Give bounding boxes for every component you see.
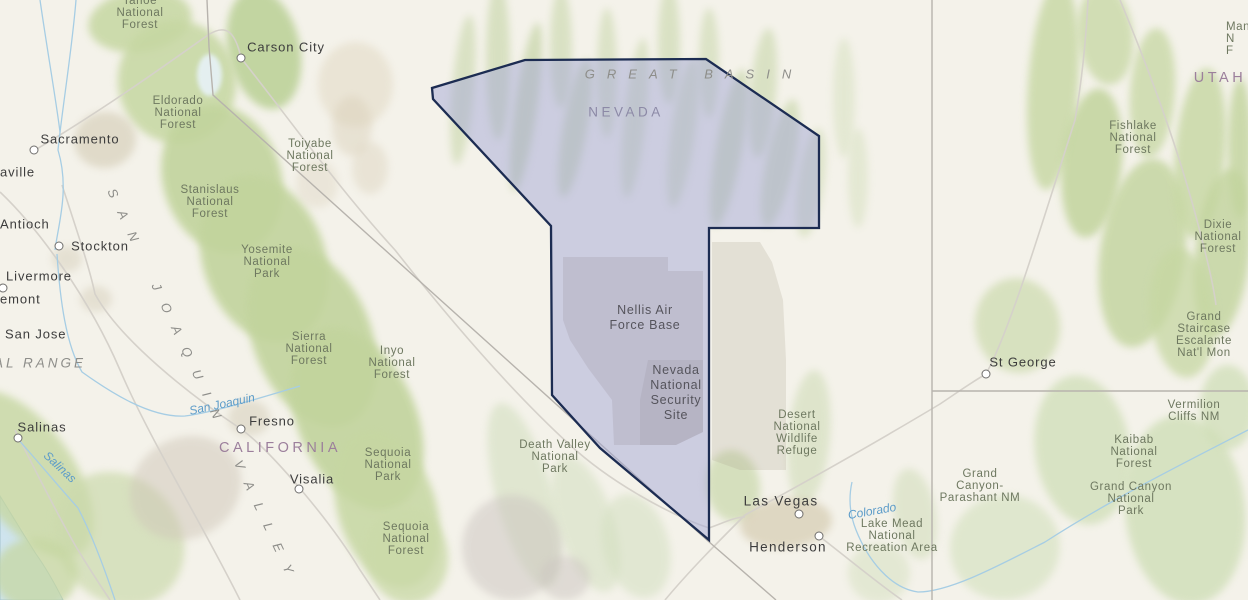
label-death-valley-np: Death Valley National Park [519, 440, 591, 476]
mountain-ridge [446, 14, 481, 165]
military-area [462, 495, 562, 600]
forest-area [222, 228, 402, 447]
city-label-carson-city: Carson City [247, 40, 325, 55]
line-layer [0, 0, 1248, 600]
forest-area [967, 271, 1067, 379]
label-kaibab-nf: Kaibab National Forest [1111, 435, 1158, 471]
forest-area [264, 307, 450, 530]
lake-tahoe [197, 54, 222, 96]
city-marker-carson-city [237, 54, 246, 63]
mountain-ridge [702, 67, 755, 229]
label-sequoia-np: Sequoia National Park [365, 448, 412, 484]
forest-area [1025, 369, 1140, 531]
label-manti-nf-clipped: Man N F [1226, 22, 1248, 58]
city-label-antioch: Antioch [0, 217, 50, 232]
river-label-san-joaquin: San Joaquin [188, 390, 256, 418]
mountain-ridge [551, 57, 599, 199]
city-marker-stockton [55, 242, 64, 251]
road-ut [1120, 0, 1216, 305]
label-gc-parashant: Grand Canyon- Parashant NM [940, 469, 1021, 505]
state-label-california: CALIFORNIA [219, 440, 341, 456]
label-grand-staircase: Grand Staircase Escalante Nat'l Mon [1176, 312, 1232, 360]
label-nevada-nss: Nevada National Security Site [650, 363, 701, 423]
forest-area [848, 543, 910, 600]
terrain-tan [296, 160, 338, 208]
forest-area [1054, 85, 1129, 240]
map-canvas[interactable]: CALIFORNIA NEVADA UTAH GREAT BASIN SAN J… [0, 0, 1248, 600]
forest-area [142, 88, 301, 269]
label-fishlake-nf: Fishlake National Forest [1109, 121, 1157, 157]
forest-area [1144, 245, 1220, 380]
city-marker-fresno [237, 425, 246, 434]
forest-area [104, 7, 250, 157]
terrain-tan [352, 142, 388, 194]
city-label-visalia: Visalia [290, 472, 334, 487]
label-sierra-nf: Sierra National Forest [286, 332, 333, 368]
salinas-river [16, 437, 115, 600]
mountain-ridge [790, 127, 831, 240]
label-dixie-nf: Dixie National Forest [1195, 220, 1242, 256]
military-area [111, 416, 261, 560]
city-label-sacramento: Sacramento [40, 132, 119, 147]
region-label-coastal-range: AL RANGE [0, 356, 86, 371]
state-borders [207, 0, 1248, 600]
border-ca-nv [207, 0, 776, 600]
forest-area [1021, 0, 1086, 191]
label-sequoia-nf: Sequoia National Forest [383, 522, 430, 558]
city-label-salinas: Salinas [18, 420, 67, 435]
label-lake-mead-nra: Lake Mead National Recreation Area [846, 519, 937, 555]
city-label-san-jose: San Jose [5, 327, 66, 342]
forest-area [1073, 0, 1138, 88]
mountain-ridge [486, 0, 510, 140]
city-label-vacaville-clipped: aville [0, 165, 35, 180]
urban-area [52, 246, 82, 272]
military-area [540, 556, 590, 600]
terrain-tan [318, 42, 393, 127]
road-i15-south [665, 515, 745, 600]
city-marker-henderson [815, 532, 824, 541]
road-i15 [745, 0, 1088, 515]
road-ca99 [62, 185, 380, 600]
label-yosemite-np: Yosemite National Park [241, 245, 293, 281]
city-label-st-george: St George [989, 355, 1056, 370]
mountain-ridge [699, 8, 719, 118]
mountain-ridge [503, 21, 548, 192]
label-stanislaus-nf: Stanislaus National Forest [180, 185, 239, 221]
label-eldorado-nf: Eldorado National Forest [153, 96, 204, 132]
roads [0, 0, 1216, 600]
region-label-san-joaquin-valley: SAN JOAQUIN VALLEY [104, 186, 303, 589]
label-toiyabe-nf: Toiyabe National Forest [287, 139, 334, 175]
forest-area [1126, 27, 1180, 160]
mountain-ridge [550, 0, 572, 108]
urban-area [80, 286, 112, 312]
road-us101 [15, 430, 110, 600]
label-nellis-afb: Nellis Air Force Base [610, 303, 681, 333]
desert-nwr-land [712, 242, 786, 470]
label-inyo-nf: Inyo National Forest [369, 346, 416, 382]
label-tahoe-nf: Tahoe National Forest [117, 0, 164, 32]
region-label-great-basin: GREAT BASIN [585, 67, 803, 82]
feather-river [40, 0, 60, 132]
colorado-river [850, 430, 1248, 592]
mountain-ridge [616, 37, 655, 198]
city-label-henderson: Henderson [749, 540, 827, 555]
forest-area [315, 417, 458, 600]
city-label-livermore: Livermore [6, 269, 72, 284]
forest-area [701, 447, 764, 526]
sacramento-river [55, 0, 76, 250]
nnss-land [640, 360, 703, 445]
road-us95 [241, 58, 745, 528]
forest-area [0, 538, 78, 600]
forest-area [0, 368, 120, 580]
forest-area [177, 157, 350, 360]
urban-area [70, 107, 141, 173]
forest-area [590, 486, 681, 600]
road-us93 [819, 536, 902, 600]
road-i80 [35, 30, 241, 150]
forest-area [1186, 166, 1248, 341]
city-marker-las-vegas [795, 510, 804, 519]
mountain-ridge [597, 8, 617, 138]
highlighted-range-polygon[interactable] [432, 59, 819, 540]
mountain-ridge [661, 57, 706, 209]
forest-area [1200, 365, 1248, 450]
label-desert-nwr: Desert National Wildlife Refuge [774, 410, 821, 458]
ocean-layer [0, 0, 1248, 600]
city-marker-visalia [295, 485, 304, 494]
forest-area [84, 0, 196, 59]
forest-area [358, 502, 455, 600]
forest-area [1168, 66, 1233, 240]
mountain-ridge [744, 27, 781, 159]
san-joaquin-river [57, 254, 300, 416]
nellis-afb-land [563, 257, 703, 445]
state-label-nevada: NEVADA [588, 105, 664, 120]
pacific-ocean [0, 496, 63, 600]
city-label-las-vegas: Las Vegas [744, 494, 819, 509]
river-label-colorado: Colorado [847, 500, 897, 522]
forest-area [27, 445, 212, 600]
city-marker-st-george [982, 370, 991, 379]
forest-area [537, 448, 634, 600]
city-label-stockton: Stockton [71, 239, 129, 254]
label-grand-canyon-np: Grand Canyon National Park [1090, 482, 1172, 518]
state-label-utah: UTAH [1194, 70, 1246, 86]
forest-area [1228, 78, 1248, 218]
terrain-tan [332, 96, 372, 156]
urban-area [738, 494, 834, 552]
forest-area [216, 0, 312, 116]
city-marker-salinas [14, 434, 23, 443]
forest-area [886, 465, 943, 563]
city-label-fremont-clipped: emont [0, 292, 41, 307]
city-label-fresno: Fresno [249, 414, 295, 429]
mountain-ridge [833, 38, 855, 158]
forest-area [1115, 409, 1248, 600]
road-i5 [0, 192, 240, 600]
forest-area [940, 485, 1069, 600]
urban-area [228, 400, 270, 436]
forest-area [472, 396, 575, 594]
mountain-ridge [848, 128, 868, 228]
rivers [16, 0, 1248, 600]
forest-area [1087, 153, 1198, 353]
mountain-ridge [753, 97, 807, 230]
city-marker-livermore [0, 284, 8, 293]
mountain-ridge [658, 0, 680, 104]
river-label-salinas: Salinas [41, 448, 79, 485]
forest-area [782, 368, 836, 506]
city-marker-sacramento [30, 146, 39, 155]
label-vermilion-cliffs: Vermilion Cliffs NM [1168, 400, 1221, 424]
